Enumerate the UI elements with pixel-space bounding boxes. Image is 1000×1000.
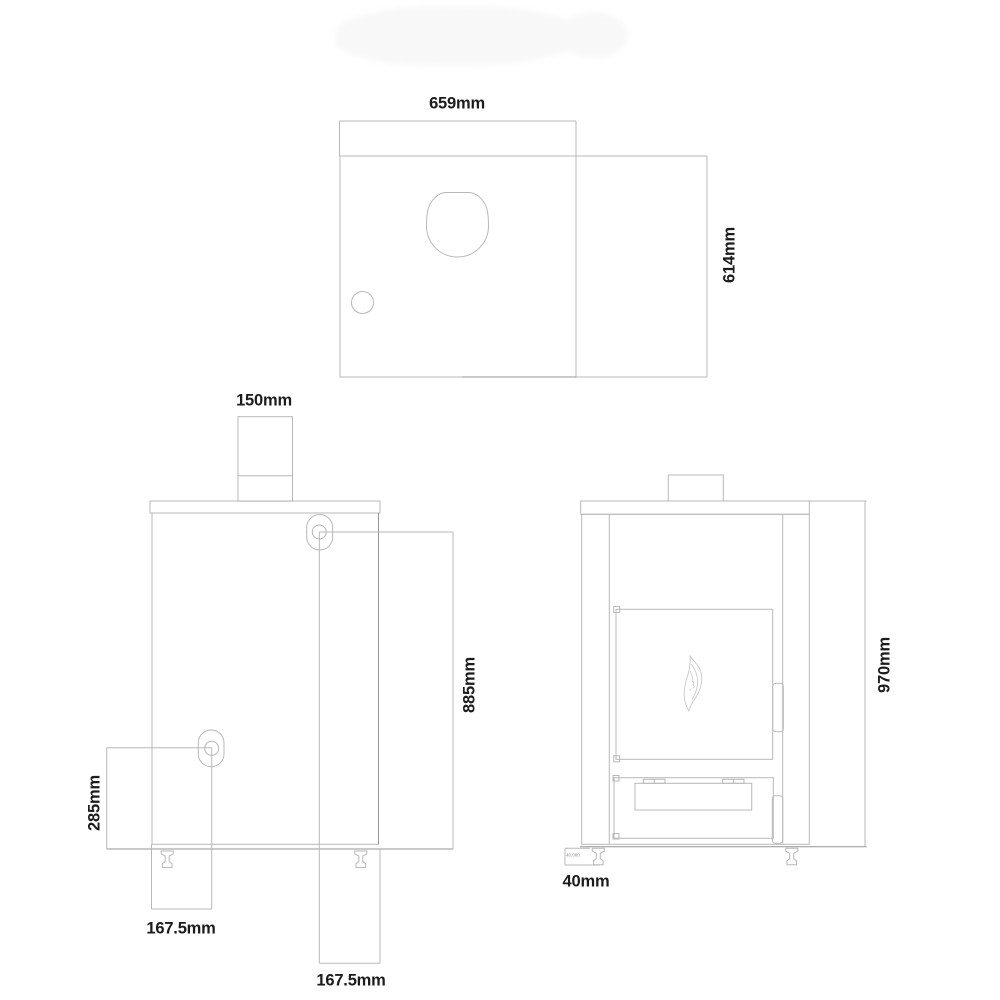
rear-body-outline bbox=[152, 513, 379, 844]
dim-label-foot-height: 40mm bbox=[563, 873, 610, 892]
dim-label-upper-outlet-offset: 167.5mm bbox=[316, 972, 385, 991]
top-view bbox=[340, 121, 708, 377]
rear-flue-height-dimension-lines bbox=[319, 532, 453, 963]
top-view-width-dimension-lines bbox=[340, 121, 577, 156]
rear-view bbox=[107, 417, 453, 964]
top-view-body-outline bbox=[340, 156, 576, 377]
flue-connector-lower bbox=[198, 730, 224, 767]
drawing-lines-layer bbox=[0, 0, 1000, 1000]
rear-upper-offset-dimension-lines bbox=[319, 849, 380, 963]
rear-left-foot bbox=[161, 851, 173, 868]
rear-lower-outlet-height-dimension-lines bbox=[107, 748, 212, 849]
flue-opening-top-view bbox=[427, 193, 489, 258]
lower-panel bbox=[614, 778, 773, 839]
door-handle-lower bbox=[772, 796, 782, 844]
flame-icon bbox=[684, 656, 702, 711]
front-view bbox=[565, 475, 867, 865]
front-flue-stub bbox=[668, 475, 723, 501]
rear-top-plate bbox=[150, 501, 380, 513]
dim-label-flue-outlet-height: 885mm bbox=[461, 657, 480, 713]
dim-label-foot-height-detail: 40.000 bbox=[566, 853, 580, 858]
front-right-foot bbox=[786, 848, 798, 865]
chimney-pipe bbox=[238, 417, 293, 502]
dim-label-lower-outlet-offset: 167.5mm bbox=[146, 920, 215, 939]
front-height-dimension-lines bbox=[809, 501, 866, 847]
front-top-plate bbox=[581, 501, 810, 514]
stove-technical-drawing: 659mm 614mm 150mm 885mm 285mm 167.5mm 16… bbox=[0, 0, 1000, 1000]
dim-label-top-width: 659mm bbox=[429, 95, 485, 114]
dim-label-top-depth: 614mm bbox=[721, 227, 740, 283]
top-view-depth-dimension-lines bbox=[576, 156, 707, 377]
dim-label-overall-height: 970mm bbox=[876, 637, 895, 693]
air-intake-top-view bbox=[352, 292, 374, 314]
ash-drawer-tabs bbox=[643, 779, 744, 783]
front-left-foot bbox=[592, 848, 604, 865]
door-handle-upper bbox=[773, 683, 784, 731]
fire-door bbox=[616, 609, 773, 759]
rear-lower-offset-dimension-lines bbox=[152, 748, 212, 909]
rear-right-foot bbox=[355, 851, 367, 868]
dim-label-lower-outlet-height: 285mm bbox=[86, 775, 105, 831]
ash-drawer bbox=[635, 783, 752, 810]
dim-label-flue-diameter: 150mm bbox=[236, 392, 292, 411]
